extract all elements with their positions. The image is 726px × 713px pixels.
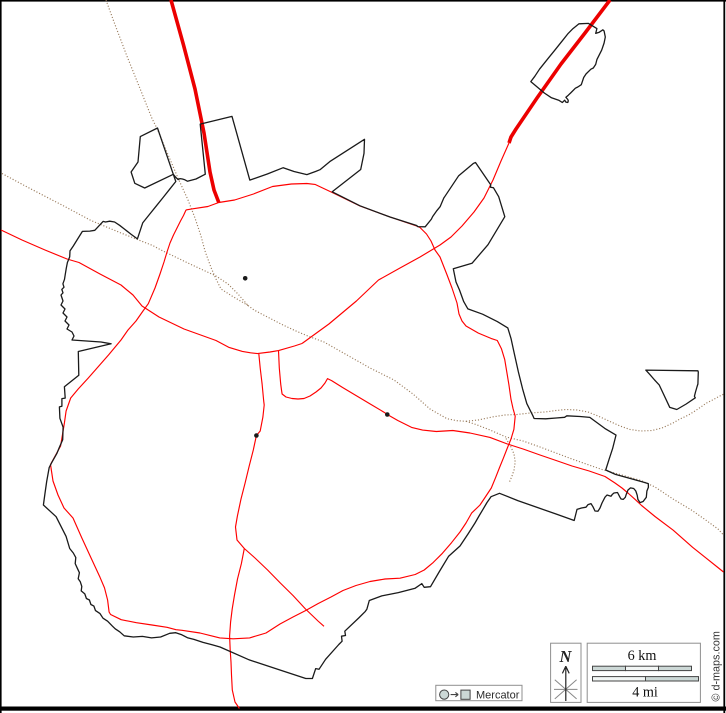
svg-text:4 mi: 4 mi <box>632 685 658 701</box>
svg-text:© d-maps.com: © d-maps.com <box>711 631 723 701</box>
svg-text:N: N <box>559 647 573 666</box>
svg-text:Mercator: Mercator <box>476 689 520 701</box>
svg-text:6 km: 6 km <box>628 648 657 664</box>
